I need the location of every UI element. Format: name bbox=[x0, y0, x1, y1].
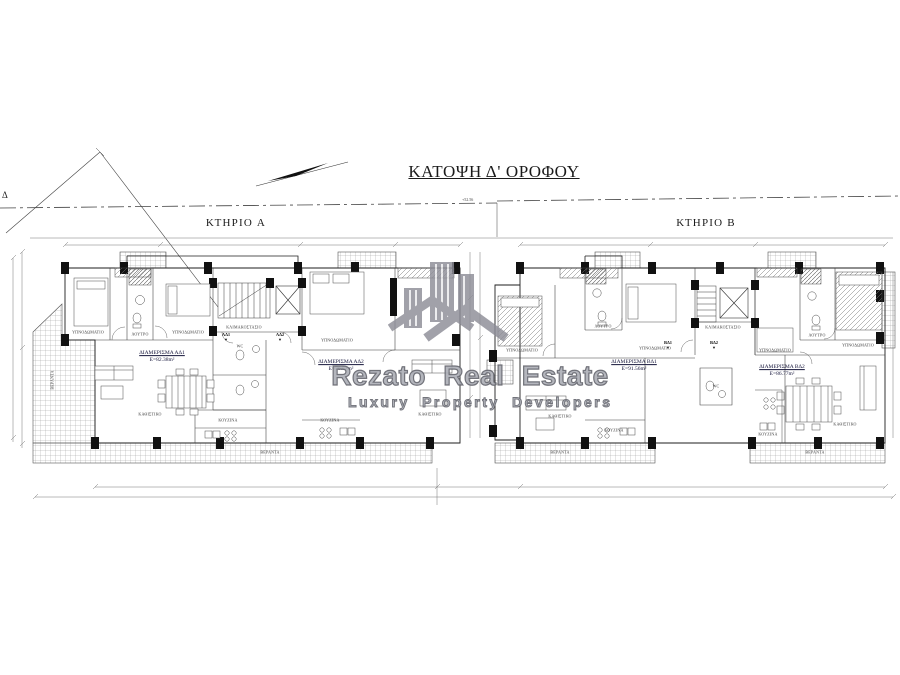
room-label-kitchen: ΚΟΥΖΙΝΑ bbox=[758, 432, 777, 437]
floor-plan-drawing bbox=[0, 0, 900, 675]
building-a-elevator bbox=[276, 286, 300, 314]
building-a-label: ΚΤΗΡΙΟ A bbox=[206, 217, 266, 229]
elevation-mark: +52.56 bbox=[462, 197, 473, 202]
room-label-bath: ΛΟΥΤΡΟ bbox=[808, 333, 825, 338]
building-b-label: ΚΤΗΡΙΟ B bbox=[676, 217, 736, 229]
apartment-bd1-area: E=91.56m² bbox=[622, 366, 647, 372]
building-b-elevator bbox=[720, 288, 748, 318]
floorplan-page: ΚΑΤΟΨΗ Δ' ΟΡΟΦΟΥ ΚΤΗΡΙΟ A ΚΤΗΡΙΟ B +52.5… bbox=[0, 0, 900, 675]
apartment-label-ad1: ΔΙΑΜΕΡΙΣΜΑ ΑΔ1 E=82.38m² bbox=[139, 350, 185, 364]
building-a-walls bbox=[65, 256, 460, 443]
apartment-ad2-area: E=76.57m² bbox=[329, 366, 354, 372]
room-label-veranda: ΒΕΡΑΝΤΑ bbox=[805, 450, 824, 455]
room-label-kitchen: ΚΟΥΖΙΝΑ bbox=[604, 428, 623, 433]
plot-corner-label: Δ bbox=[2, 190, 8, 200]
room-label-bedroom: ΥΠΝΟΔΩΜΑΤΙΟ bbox=[639, 346, 671, 351]
room-label-living: ΚΑΘΙΣΤΙΚΟ bbox=[138, 412, 161, 417]
building-a-stairs bbox=[218, 283, 270, 318]
entry-tag-bd2: ΒΔ2▼ bbox=[710, 341, 718, 350]
room-label-stairwell: ΚΛΙΜΑΚΟΣΤΑΣΙΟ bbox=[705, 325, 741, 330]
apartment-bd1-name: ΔΙΑΜΕΡΙΣΜΑ ΒΔ1 bbox=[611, 359, 657, 366]
apartment-ad1-area: E=82.38m² bbox=[150, 357, 175, 363]
room-label-bedroom: ΥΠΝΟΔΩΜΑΤΙΟ bbox=[172, 330, 204, 335]
room-label-bath: ΛΟΥΤΡΟ bbox=[594, 324, 611, 329]
room-label-living: ΚΑΘΙΣΤΙΚΟ bbox=[548, 414, 571, 419]
room-label-bedroom: ΥΠΝΟΔΩΜΑΤΙΟ bbox=[842, 343, 874, 348]
room-label-kitchen: ΚΟΥΖΙΝΑ bbox=[218, 418, 237, 423]
room-label-bedroom: ΥΠΝΟΔΩΜΑΤΙΟ bbox=[506, 348, 538, 353]
apartment-ad2-name: ΔΙΑΜΕΡΙΣΜΑ ΑΔ2 bbox=[318, 359, 364, 366]
room-label-veranda: ΒΕΡΑΝΤΑ bbox=[50, 370, 55, 389]
entry-tag-ad2: ΑΔ2▼ bbox=[276, 333, 284, 342]
room-label-wc: WC bbox=[237, 344, 244, 349]
room-label-stairwell: ΚΛΙΜΑΚΟΣΤΑΣΙΟ bbox=[226, 325, 262, 330]
apartment-label-bd2: ΔΙΑΜΕΡΙΣΜΑ ΒΔ2 E=86.77m² bbox=[759, 364, 805, 378]
page-title: ΚΑΤΟΨΗ Δ' ΟΡΟΦΟΥ bbox=[408, 162, 579, 182]
room-label-kitchen: ΚΟΥΖΙΝΑ bbox=[320, 418, 339, 423]
north-arrow-icon bbox=[256, 162, 348, 186]
room-label-veranda: ΒΕΡΑΝΤΑ bbox=[550, 450, 569, 455]
room-label-bedroom: ΥΠΝΟΔΩΜΑΤΙΟ bbox=[72, 330, 104, 335]
entry-arrow-icon: ▼ bbox=[222, 338, 230, 342]
room-label-wc: WC bbox=[713, 384, 720, 389]
room-label-living: ΚΑΘΙΣΤΙΚΟ bbox=[418, 412, 441, 417]
apartment-label-ad2: ΔΙΑΜΕΡΙΣΜΑ ΑΔ2 E=76.57m² bbox=[318, 359, 364, 373]
room-label-bedroom: ΥΠΝΟΔΩΜΑΤΙΟ bbox=[759, 348, 791, 353]
apartment-label-bd1: ΔΙΑΜΕΡΙΣΜΑ ΒΔ1 E=91.56m² bbox=[611, 359, 657, 373]
room-label-veranda: ΒΕΡΑΝΤΑ bbox=[260, 450, 279, 455]
apartment-bd2-name: ΔΙΑΜΕΡΙΣΜΑ ΒΔ2 bbox=[759, 364, 805, 371]
room-label-bath: ΛΟΥΤΡΟ bbox=[131, 332, 148, 337]
entry-tag-ad1: ΑΔ1▼ bbox=[222, 333, 230, 342]
entry-arrow-icon: ▼ bbox=[276, 338, 284, 342]
apartment-bd2-area: E=86.77m² bbox=[770, 371, 795, 377]
entry-arrow-icon: ▼ bbox=[710, 346, 718, 350]
room-label-bedroom: ΥΠΝΟΔΩΜΑΤΙΟ bbox=[321, 338, 353, 343]
apartment-ad1-name: ΔΙΑΜΕΡΙΣΜΑ ΑΔ1 bbox=[139, 350, 185, 357]
building-b-stairs bbox=[697, 286, 716, 322]
room-label-living: ΚΑΘΙΣΤΙΚΟ bbox=[833, 422, 856, 427]
